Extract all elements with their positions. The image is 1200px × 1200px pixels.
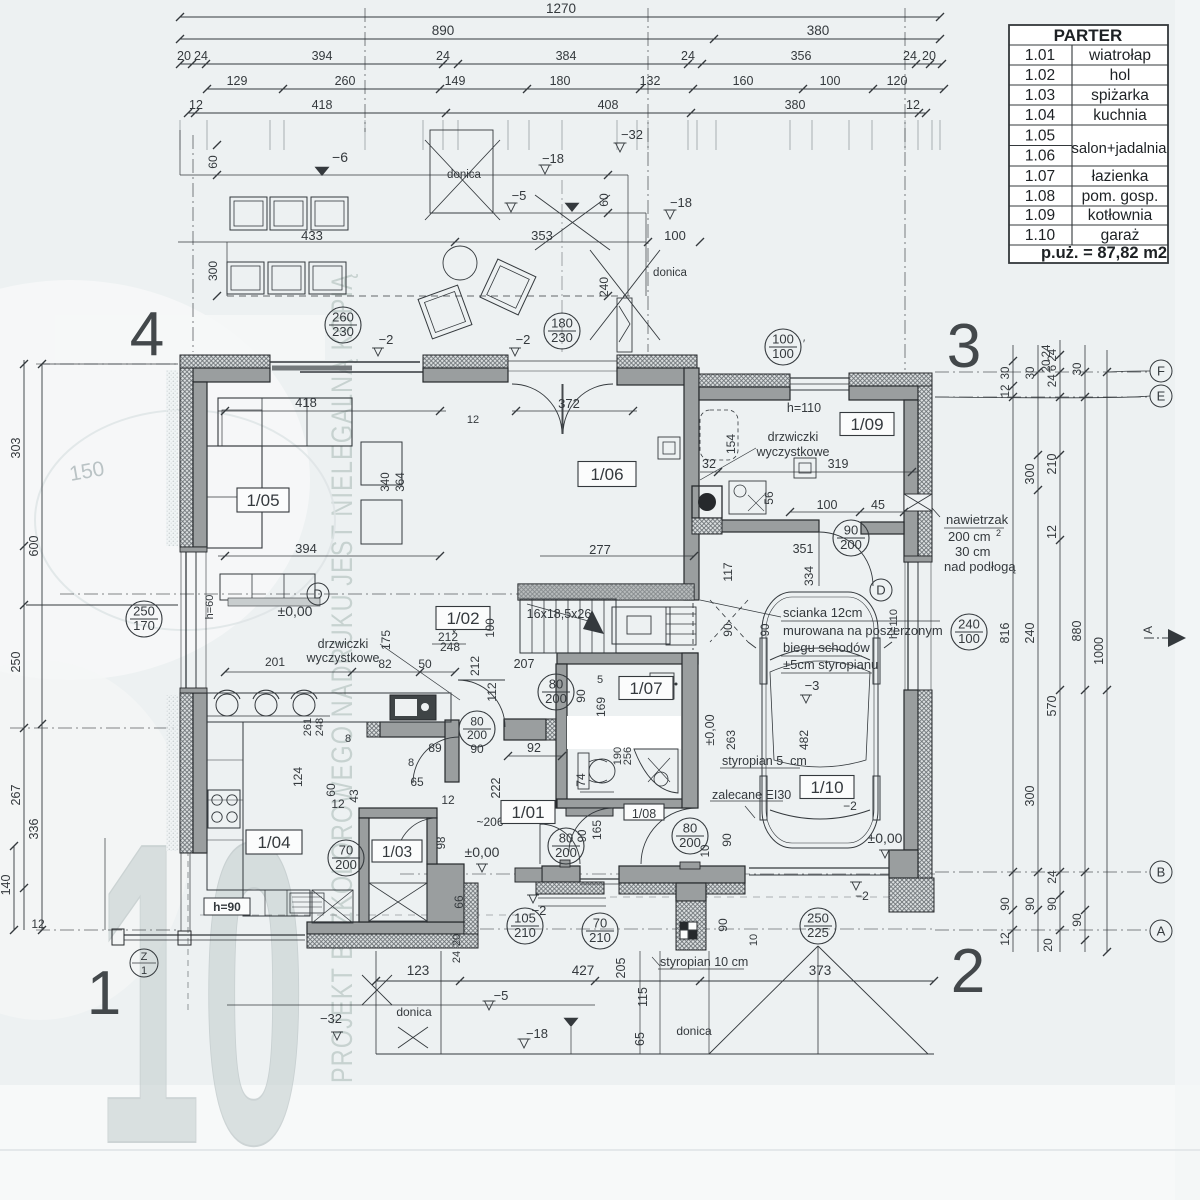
svg-text:200 cm: 200 cm [948,529,991,544]
svg-text:250: 250 [133,604,155,619]
svg-text:570: 570 [1045,696,1059,717]
svg-text:1/10: 1/10 [810,778,843,797]
svg-text:kuchnia: kuchnia [1093,107,1147,124]
svg-text:nawietrzak: nawietrzak [946,512,1009,527]
svg-text:353: 353 [531,228,553,243]
svg-text:256: 256 [622,747,634,765]
svg-text:129: 129 [227,74,248,88]
svg-text:spiżarka: spiżarka [1091,87,1149,104]
svg-text:240: 240 [958,617,980,632]
svg-text:10: 10 [748,934,760,946]
svg-text:890: 890 [432,23,455,38]
svg-text:1.03: 1.03 [1025,87,1055,104]
svg-text:418: 418 [312,98,333,112]
svg-text:30: 30 [1000,367,1012,380]
svg-text:380: 380 [785,98,806,112]
svg-text:210: 210 [514,925,536,940]
svg-text:−6: −6 [332,149,348,165]
svg-text:2: 2 [996,528,1001,538]
svg-text:160: 160 [733,74,754,88]
svg-text:PROJEKT BEZKOLOROWEGO NADRUKU: PROJEKT BEZKOLOROWEGO NADRUKU JEST NIELE… [326,273,359,1083]
svg-text:donica: donica [676,1024,712,1038]
svg-text:donica: donica [447,169,481,181]
svg-text:334: 334 [802,566,816,586]
svg-text:45: 45 [871,498,885,512]
svg-text:207: 207 [514,657,535,671]
svg-text:100: 100 [772,332,794,347]
svg-text:816: 816 [998,623,1012,644]
svg-text:117: 117 [721,562,735,581]
svg-text:90: 90 [998,897,1012,911]
svg-text:90: 90 [574,689,588,703]
svg-text:248: 248 [314,718,326,736]
svg-text:120: 120 [887,74,908,88]
svg-text:pom. gosp.: pom. gosp. [1082,188,1159,205]
svg-text:hol: hol [1110,67,1131,84]
svg-text:66: 66 [452,895,466,909]
svg-text:12: 12 [441,793,455,807]
svg-text:′: ′ [803,338,805,350]
svg-text:169: 169 [594,697,608,717]
svg-text:70: 70 [339,843,353,858]
svg-text:260: 260 [335,74,356,88]
svg-text:201: 201 [265,655,285,669]
svg-text:372: 372 [558,396,580,411]
svg-text:384: 384 [556,49,577,63]
svg-text:12: 12 [998,932,1012,946]
svg-text:70: 70 [593,916,607,931]
svg-text:180: 180 [550,74,571,88]
svg-text:h=60: h=60 [204,595,216,620]
svg-text:180: 180 [551,316,573,331]
svg-text:−32: −32 [621,127,643,142]
svg-text:200: 200 [555,845,577,860]
svg-text:20: 20 [451,934,463,946]
svg-text:394: 394 [312,49,333,63]
svg-text:donica: donica [653,267,687,279]
svg-text:89: 89 [428,741,442,755]
svg-text:−3: −3 [805,678,820,693]
svg-text:225: 225 [807,925,829,940]
svg-text:styropian 10 cm: styropian 10 cm [660,955,748,969]
svg-text:1.10: 1.10 [1025,227,1056,244]
svg-text:±0,00: ±0,00 [278,603,313,619]
svg-text:261: 261 [302,718,314,736]
svg-text:1000: 1000 [1092,637,1106,665]
svg-text:1/04: 1/04 [257,833,290,852]
svg-text:kotłownia: kotłownia [1088,207,1153,224]
svg-text:200: 200 [467,728,487,742]
svg-text:A: A [1141,626,1155,634]
svg-text:394: 394 [295,541,317,556]
svg-text:−18: −18 [670,195,692,210]
svg-text:24: 24 [681,49,695,63]
svg-text:250: 250 [807,911,829,926]
svg-text:30: 30 [1072,363,1084,376]
svg-text:380: 380 [807,23,830,38]
svg-text:±5cm styropianu: ±5cm styropianu [783,657,878,672]
svg-text:12: 12 [331,797,345,811]
svg-text:12: 12 [906,98,920,112]
svg-text:90: 90 [721,623,735,637]
svg-text:123: 123 [407,963,430,978]
svg-text:Z: Z [141,951,148,963]
svg-text:149: 149 [445,74,466,88]
svg-text:210: 210 [1045,454,1059,475]
svg-text:D: D [313,587,322,602]
svg-text:1.02: 1.02 [1025,67,1055,84]
svg-text:D: D [876,583,885,598]
svg-text:364: 364 [395,472,407,492]
svg-text:1: 1 [141,965,147,977]
svg-text:1/01: 1/01 [511,803,544,822]
svg-text:p.uż. = 87,82 m2: p.uż. = 87,82 m2 [1041,244,1167,262]
svg-text:65: 65 [410,775,424,789]
svg-text:20: 20 [1041,938,1055,952]
svg-text:90: 90 [1045,897,1059,911]
svg-text:1.06: 1.06 [1025,148,1055,165]
svg-text:−2: −2 [516,332,531,347]
svg-text:248: 248 [440,640,460,654]
svg-text:260: 260 [332,310,354,325]
svg-text:90: 90 [716,918,730,932]
svg-text:60: 60 [206,155,220,169]
svg-text:B: B [1157,865,1166,880]
svg-text:drzwiczki: drzwiczki [318,637,369,651]
svg-text:wiatrołap: wiatrołap [1088,47,1151,64]
svg-text:222: 222 [489,778,503,799]
svg-text:20: 20 [177,49,191,63]
svg-text:100: 100 [772,346,794,361]
svg-text:418: 418 [295,395,317,410]
svg-text:wyczystkowe: wyczystkowe [756,445,830,459]
svg-text:90: 90 [720,833,734,847]
svg-text:74: 74 [574,773,588,787]
svg-text:124: 124 [291,767,305,787]
svg-text:100: 100 [820,74,841,88]
svg-text:175: 175 [379,630,393,650]
svg-text:−5: −5 [512,188,527,203]
svg-text:murowana na poszerzonym: murowana na poszerzonym [783,623,943,638]
svg-text:90: 90 [1070,913,1084,927]
svg-text:1.01: 1.01 [1025,47,1055,64]
svg-text:336: 336 [27,819,41,840]
svg-text:210: 210 [589,930,611,945]
svg-text:140: 140 [0,875,13,896]
svg-text:351: 351 [793,542,814,556]
svg-text:267: 267 [9,785,23,806]
svg-text:340: 340 [380,472,392,491]
svg-text:−2: −2 [855,889,869,903]
svg-text:80: 80 [549,677,563,692]
svg-text:1/03: 1/03 [382,844,412,861]
svg-text:24: 24 [451,951,463,963]
svg-text:12: 12 [31,917,45,931]
svg-text:F: F [1157,364,1165,379]
svg-text:3: 3 [947,312,981,381]
svg-text:−32: −32 [320,1011,342,1026]
svg-text:277: 277 [589,542,611,557]
svg-text:80: 80 [470,715,484,729]
svg-text:300: 300 [1023,786,1037,807]
svg-text:10: 10 [700,845,712,858]
svg-text:12: 12 [467,414,479,426]
svg-text:1.09: 1.09 [1025,207,1055,224]
svg-text:garaż: garaż [1101,227,1140,244]
svg-text:319: 319 [828,457,849,471]
svg-text:h=90: h=90 [213,900,241,914]
svg-text:4: 4 [130,300,164,369]
svg-text:24: 24 [1045,870,1059,884]
svg-text:30: 30 [1025,367,1037,380]
svg-text:E: E [1157,389,1166,404]
svg-text:1.07: 1.07 [1025,168,1055,185]
svg-text:8: 8 [345,733,351,745]
svg-text:1/06: 1/06 [590,465,623,484]
svg-text:112: 112 [485,682,499,701]
svg-text:h=110: h=110 [787,401,821,415]
svg-text:łazienka: łazienka [1092,168,1149,185]
svg-text:20: 20 [922,49,936,63]
svg-text:12: 12 [1045,525,1059,539]
svg-text:230: 230 [332,324,354,339]
svg-text:408: 408 [598,98,619,112]
svg-text:30 cm: 30 cm [955,544,990,559]
svg-text:1/07: 1/07 [629,679,662,698]
svg-text:24 6 24: 24 6 24 [1047,348,1059,387]
svg-text:100: 100 [817,498,838,512]
svg-text:±0,00: ±0,00 [465,844,500,860]
svg-text:wyczystkowe: wyczystkowe [306,651,380,665]
svg-text:90: 90 [577,830,589,843]
svg-text:−18: −18 [542,151,564,166]
svg-text:50: 50 [418,657,432,671]
svg-text:5: 5 [597,674,603,686]
svg-text:12: 12 [1000,385,1012,398]
svg-text:±0,00: ±0,00 [868,830,903,846]
svg-text:1270: 1270 [546,1,576,16]
svg-text:80: 80 [559,831,573,846]
svg-text:200: 200 [840,537,862,552]
svg-text:1.05: 1.05 [1025,128,1055,145]
svg-text:303: 303 [9,438,23,459]
svg-text:8: 8 [408,757,414,769]
svg-text:−2: −2 [379,332,394,347]
svg-text:60: 60 [324,783,338,797]
svg-text:240: 240 [1023,623,1037,644]
svg-text:−5: −5 [494,988,509,1003]
svg-text:200: 200 [679,835,701,850]
svg-text:427: 427 [572,963,595,978]
svg-text:92: 92 [527,741,541,755]
svg-text:82: 82 [378,657,392,671]
svg-text:24: 24 [194,49,208,63]
svg-text:1/09: 1/09 [850,415,883,434]
svg-text:32: 32 [702,457,716,471]
svg-text:salon+jadalnia: salon+jadalnia [1071,141,1167,157]
svg-text:880: 880 [1070,621,1084,642]
svg-text:250: 250 [9,652,23,673]
svg-text:−18: −18 [526,1026,548,1041]
svg-text:165: 165 [590,820,604,840]
svg-text:PARTER: PARTER [1054,26,1123,45]
svg-text:90: 90 [844,523,858,538]
svg-text:donica: donica [396,1005,432,1019]
svg-text:~206: ~206 [476,815,503,829]
svg-text:240: 240 [597,277,611,297]
svg-text:24: 24 [436,49,450,63]
svg-text:100: 100 [958,631,980,646]
svg-text:−2: −2 [843,799,857,813]
svg-text:212: 212 [468,656,482,676]
svg-text:115: 115 [636,987,650,1007]
svg-text:styropian 5 cm: styropian 5 cm [722,754,807,768]
svg-text:356: 356 [791,49,812,63]
svg-text:biegu schodów: biegu schodów [783,640,870,655]
svg-text:90: 90 [1023,897,1037,911]
svg-text:1: 1 [87,959,121,1028]
svg-text:56: 56 [762,491,776,505]
svg-text:170: 170 [133,618,155,633]
svg-text:zalecane EI30: zalecane EI30 [712,788,791,802]
svg-text:98: 98 [436,837,448,850]
svg-text:1.08: 1.08 [1025,188,1055,205]
svg-text:205: 205 [614,958,628,979]
svg-text:230: 230 [551,330,573,345]
svg-text:1/02: 1/02 [446,609,479,628]
svg-text:90: 90 [470,742,484,756]
svg-text:1/08: 1/08 [632,807,656,821]
svg-text:100: 100 [485,618,497,637]
svg-text:200: 200 [335,857,357,872]
svg-text:scianka 12cm: scianka 12cm [783,605,862,620]
svg-text:43: 43 [347,789,361,803]
svg-text:600: 600 [27,536,41,557]
svg-text:300: 300 [206,261,220,281]
svg-text:2: 2 [951,937,985,1006]
svg-text:1.04: 1.04 [1025,107,1056,124]
svg-text:154: 154 [724,434,738,454]
svg-text:1/05: 1/05 [246,491,279,510]
svg-text:A: A [1157,924,1166,939]
svg-text:90: 90 [760,624,772,637]
svg-text:80: 80 [683,821,697,836]
svg-text:132: 132 [640,74,661,88]
svg-text:482: 482 [797,730,811,750]
svg-text:105: 105 [514,911,536,926]
svg-text:300: 300 [1023,464,1037,485]
svg-text:263: 263 [724,730,738,750]
svg-text:100: 100 [664,228,686,243]
svg-text:200: 200 [545,691,567,706]
svg-text:nad podłogą: nad podłogą [944,559,1016,574]
svg-text:12: 12 [189,98,203,112]
svg-text:drzwiczki: drzwiczki [768,430,819,444]
svg-text:373: 373 [809,963,832,978]
svg-text:±0,00: ±0,00 [703,714,717,745]
